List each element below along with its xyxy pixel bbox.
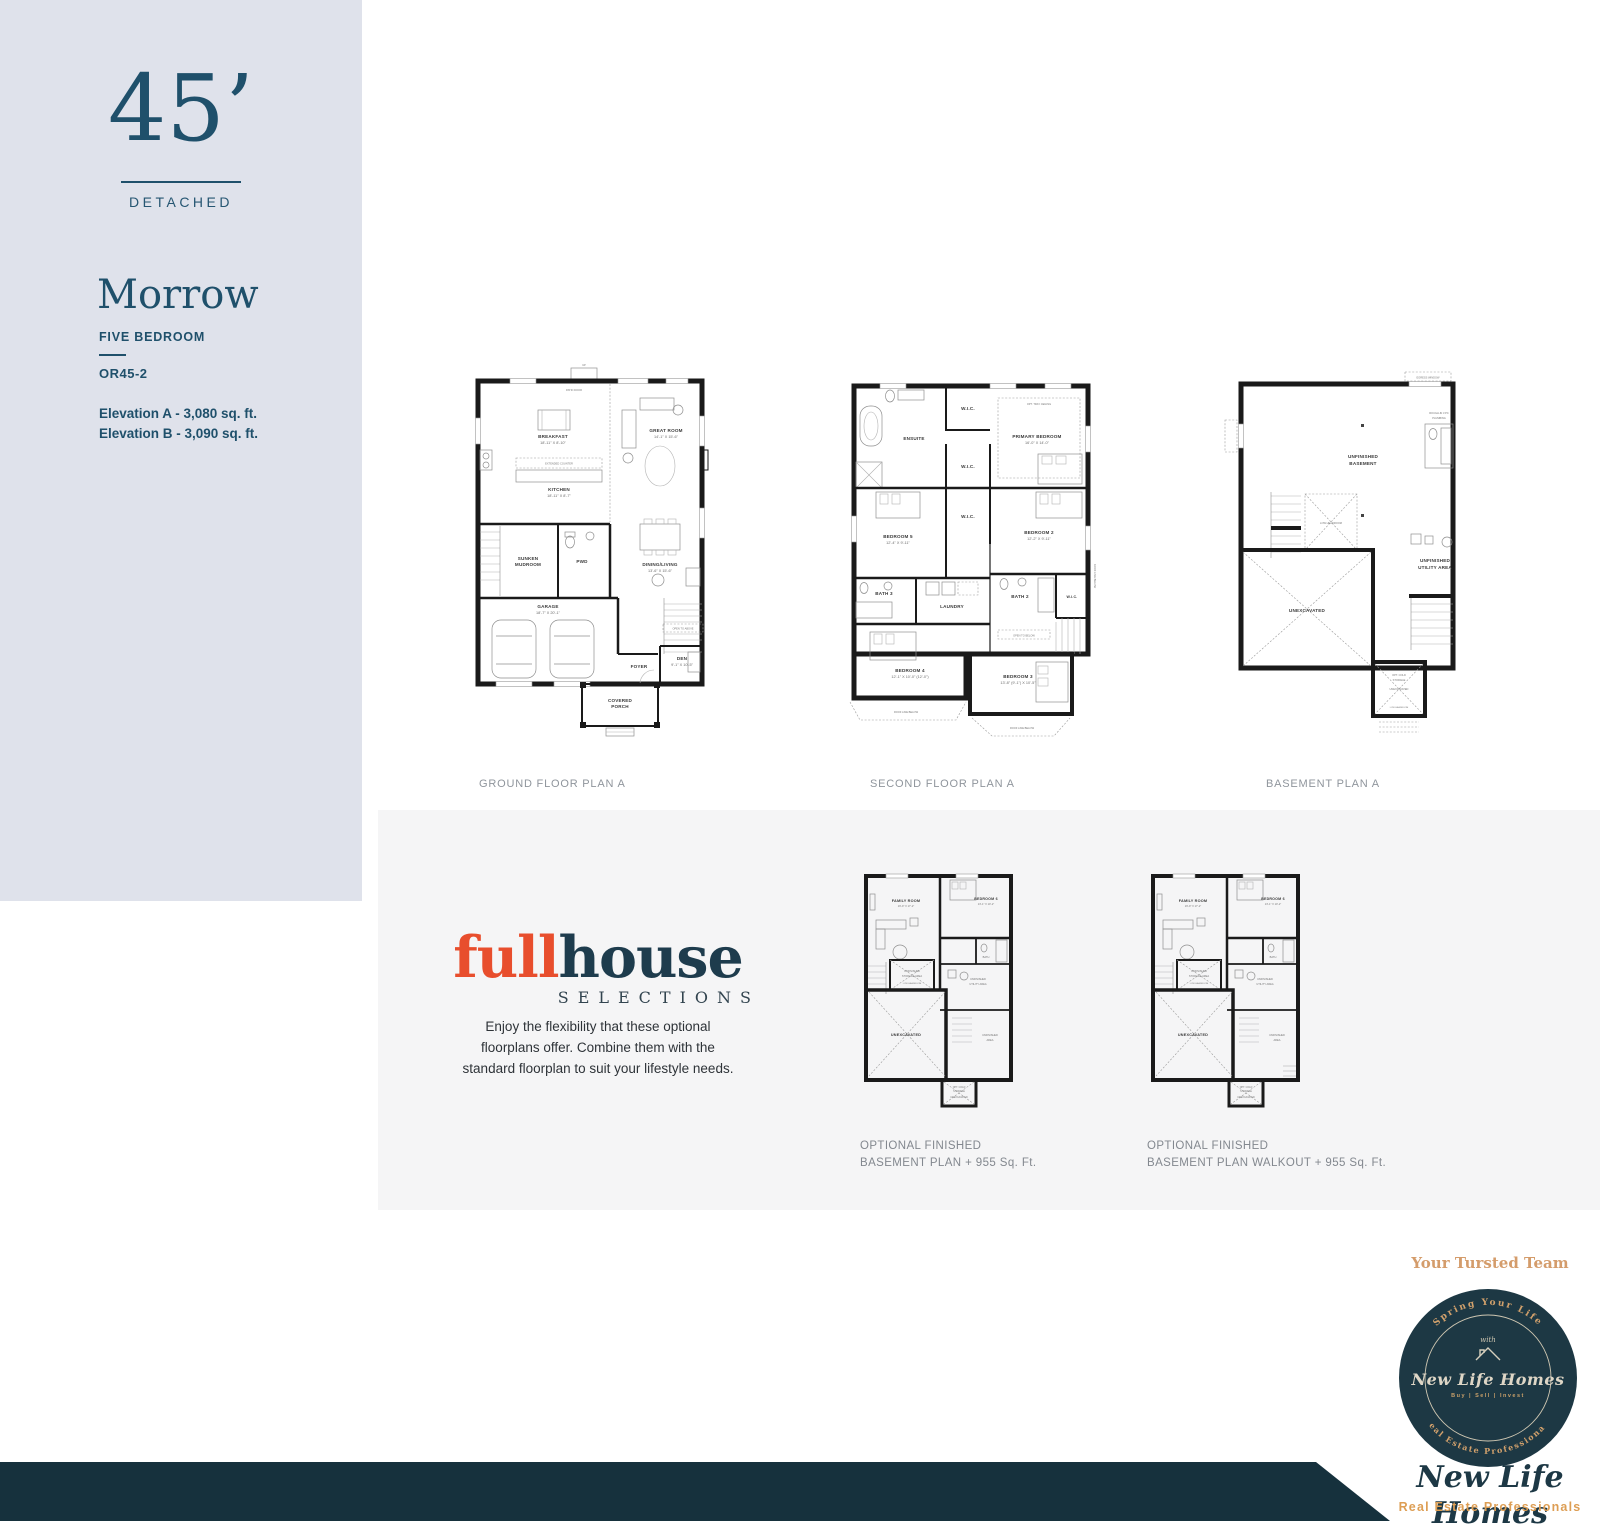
room-dim-primary: 16'-0" X 14'-0" <box>1025 441 1050 445</box>
dining-chairs <box>644 519 676 555</box>
badge-name: New Life Homes <box>1410 1370 1564 1389</box>
cold-unexcavated-label: UNEXCAVATED <box>1390 687 1409 691</box>
room-dim-bedroom6: 13'-1" X 10'-2" <box>978 902 994 906</box>
caption-second-floor: SECOND FLOOR PLAN A <box>870 778 1015 790</box>
area-label-1: UNFINISHED <box>1269 1033 1285 1037</box>
utility-label-1: UNFINISHED <box>1257 977 1273 981</box>
caption-optional-basement-line2: BASEMENT PLAN + 955 Sq. Ft. <box>860 1155 1036 1172</box>
caption-ground-floor: GROUND FLOOR PLAN A <box>479 778 626 790</box>
second-floor-plan: ENSUITE W.I.C. W.I.C. OPT. TRAY CEILING … <box>840 366 1100 744</box>
optional-plan-walls <box>866 874 1011 1106</box>
room-label-breakfast: BREAKFAST <box>538 434 568 439</box>
new-life-homes-badge: Spring Your Life with New Life Homes Buy… <box>1396 1286 1580 1470</box>
room-label-primary: PRIMARY BEDROOM <box>1012 434 1061 439</box>
lot-frontage: 45’ <box>0 58 362 159</box>
room-dim-bedroom5: 12'-4" X 9'-11" <box>886 541 910 545</box>
signature-wordmark: New Life Homes <box>1398 1460 1582 1532</box>
room-label-bath2: BATH 2 <box>1011 594 1029 599</box>
cold-unexcavated: UNEXCAVATED <box>950 1096 968 1099</box>
model-code: OR45-2 <box>99 366 148 381</box>
storage-label-2: STORAGE AREA <box>902 974 923 978</box>
caption-optional-basement: OPTIONAL FINISHED BASEMENT PLAN + 955 Sq… <box>860 1138 1036 1172</box>
trusted-team-tagline: Your Tursted Team <box>1400 1254 1580 1272</box>
car-2 <box>550 620 594 678</box>
room-dim-bedroom2: 12'-2" X 9'-11" <box>1027 537 1051 541</box>
utility-label-2: UTILITY AREA <box>1418 565 1452 570</box>
unexcavated-label: UNEXCAVATED <box>1178 1033 1208 1037</box>
cold-low-headroom-label: LOW HEADROOM <box>1390 706 1409 709</box>
room-label-bath: BATH <box>983 955 990 959</box>
second-plan-labels: ENSUITE W.I.C. W.I.C. OPT. TRAY CEILING … <box>875 402 1097 730</box>
elevation-b-sqft: Elevation B - 3,090 sq. ft. <box>99 426 258 441</box>
cold-label-1: OPT. COLD <box>1240 1086 1253 1089</box>
room-label-pwd: PWD <box>576 559 588 564</box>
optional-stairs-right <box>952 1018 972 1042</box>
egress-window-label: EGRESS WINDOW <box>1417 376 1440 380</box>
extended-counter-label: EXTENDED COUNTER <box>545 462 573 466</box>
unexcavated-label: UNEXCAVATED <box>1289 608 1326 613</box>
room-dim-family: 16'-9" X 17'-2" <box>1185 904 1201 908</box>
basement-stairs-lower <box>1411 598 1453 650</box>
storage-label-2: STORAGE AREA <box>1189 974 1210 978</box>
room-label-bedroom5: BEDROOM 5 <box>883 534 913 539</box>
cold-storage-label-1: OPT. COLD <box>1392 673 1406 677</box>
stairwell <box>1056 618 1080 654</box>
room-label-garage: GARAGE <box>537 604 558 609</box>
room-dim-den: 9'-1" X 10'-5" <box>671 663 694 667</box>
cold-storage-steps <box>1379 722 1419 732</box>
caption-basement: BASEMENT PLAN A <box>1266 778 1380 790</box>
optional-basement-plan: FAMILY ROOM 16'-9" X 17'-2" BEDROOM 6 13… <box>856 860 1021 1110</box>
room-dim-garage: 18'-7" X 20'-1" <box>536 611 561 615</box>
room-label-ensuite: ENSUITE <box>903 436 924 441</box>
room-label-foyer: FOYER <box>631 664 648 669</box>
room-label-bath3: BATH 3 <box>875 591 893 596</box>
open-to-above-label: OPEN TO ABOVE <box>672 627 693 631</box>
room-dim-dining: 13'-6" X 15'-6" <box>648 569 673 573</box>
room-label-mudroom: MUDROOM <box>515 562 541 567</box>
storage-label-1: UNFINISHED <box>1191 969 1207 973</box>
room-dim-bedroom4: 12'-1" X 10'-0" (12'-0") <box>891 675 929 679</box>
room-dim-breakfast: 18'-11" X 8'-10" <box>540 441 566 445</box>
badge-services: Buy | Sell | Invest <box>1451 1393 1525 1399</box>
cold-label-1: OPT. COLD <box>953 1086 966 1089</box>
optional-basement-walkout-plan: FAMILY ROOM 16'-9" X 17'-2" BEDROOM 6 13… <box>1143 860 1308 1110</box>
room-label-bath: BATH <box>1270 955 1277 959</box>
ground-floor-plan: UP PATIO DOOR EXTENDED COUNTER <box>458 358 730 754</box>
room-label-basement: BASEMENT <box>1349 461 1376 466</box>
opt-tray-ceiling-label: OPT. TRAY CEILING <box>1027 402 1051 406</box>
area-label-2: AREA <box>1273 1038 1280 1042</box>
badge-with-word: with <box>1480 1336 1496 1344</box>
divider-line <box>121 181 241 183</box>
storage-low-headroom: LOW HEADROOM <box>1190 982 1209 985</box>
cold-label-2: STORAGE <box>953 1090 965 1093</box>
room-label-bedroom2: BEDROOM 2 <box>1024 530 1054 535</box>
room-label-den: DEN <box>677 656 688 661</box>
room-label-bedroom6: BEDROOM 6 <box>1261 897 1285 901</box>
room-label-family: FAMILY ROOM <box>1179 899 1208 903</box>
storage-low-headroom: LOW HEADROOM <box>903 982 922 985</box>
cold-unexcavated: UNEXCAVATED <box>1237 1096 1255 1099</box>
room-label-wic2: W.I.C. <box>961 464 975 469</box>
room-label-kitchen: KITCHEN <box>548 487 570 492</box>
caption-optional-basement-line1: OPTIONAL FINISHED <box>860 1138 1036 1155</box>
fullhouse-description: Enjoy the flexibility that these optiona… <box>418 1016 778 1079</box>
basement-plan-walls <box>1225 372 1453 732</box>
room-label-sunken: SUNKEN <box>518 556 539 561</box>
room-dim-bedroom3: 13'-8" (9'-1") X 10'-5" <box>1000 681 1036 685</box>
patio-door-label: PATIO DOOR <box>566 388 582 392</box>
fullhouse-word-full: full <box>453 924 558 991</box>
room-dim-bedroom6: 13'-1" X 10'-2" <box>1265 902 1281 906</box>
caption-optional-walkout: OPTIONAL FINISHED BASEMENT PLAN WALKOUT … <box>1147 1138 1386 1172</box>
roof-line-label-left: ROOF LINE BELOW <box>894 710 919 714</box>
signature-subtitle: Real Estate Professionals <box>1398 1500 1582 1514</box>
room-label-great-room: GREAT ROOM <box>649 428 682 433</box>
area-label-2: AREA <box>986 1038 993 1042</box>
walkout-steps <box>1283 1066 1296 1076</box>
description-line-3: standard floorplan to suit your lifestyl… <box>418 1058 778 1079</box>
basement-plan-labels: EGRESS WINDOW UNFINISHED BASEMENT LOW HE… <box>1289 376 1452 710</box>
utility-label-2: UTILITY AREA <box>969 982 987 986</box>
utility-label-2: UTILITY AREA <box>1256 982 1274 986</box>
utility-label-1: UNFINISHED <box>970 977 986 981</box>
home-type-label: DETACHED <box>0 194 362 210</box>
basement-plan: EGRESS WINDOW UNFINISHED BASEMENT LOW HE… <box>1213 366 1478 738</box>
utility-label-1: UNFINISHED <box>1420 558 1451 563</box>
rough-in-label-1: ROUGH-IN 3 PC <box>1429 411 1449 415</box>
elevation-a-sqft: Elevation A - 3,080 sq. ft. <box>99 406 257 421</box>
fullhouse-wordmark: fullhouse <box>418 928 778 988</box>
model-info-sidebar: 45’ DETACHED Morrow FIVE BEDROOM OR45-2 … <box>0 0 362 901</box>
room-label-dining: DINING/LIVING <box>642 562 677 567</box>
bedroom-count-label: FIVE BEDROOM <box>99 330 205 344</box>
room-label-bedroom6: BEDROOM 6 <box>974 897 998 901</box>
fullhouse-logo: fullhouse SELECTIONS <box>418 928 778 1007</box>
room-label-covered: COVERED <box>608 698 633 703</box>
rough-in-label-2: PLUMBING <box>1432 416 1446 420</box>
open-to-below-label: OPEN TO BELOW <box>1013 634 1035 638</box>
room-label-laundry: LAUNDRY <box>940 604 964 609</box>
unexcavated-label: UNEXCAVATED <box>891 1033 921 1037</box>
room-label-wic3: W.I.C. <box>961 514 975 519</box>
optional-stairs-right <box>1239 1018 1259 1042</box>
roof-line-label-right: ROOF LINE BELOW <box>1093 564 1097 589</box>
roof-line-label-center: ROOF LINE BELOW <box>1010 726 1035 730</box>
mudroom-stairs <box>480 526 500 596</box>
ground-plan-walls: UP PATIO DOOR EXTENDED COUNTER <box>476 363 709 736</box>
divider-line-small <box>99 354 126 356</box>
caption-optional-walkout-line2: BASEMENT PLAN WALKOUT + 955 Sq. Ft. <box>1147 1155 1386 1172</box>
storage-label-1: UNFINISHED <box>904 969 920 973</box>
room-label-unfinished: UNFINISHED <box>1348 454 1379 459</box>
cold-label-2: STORAGE <box>1240 1090 1252 1093</box>
car-1 <box>492 620 536 678</box>
room-label-wic4: W.I.C. <box>1067 595 1078 599</box>
room-dim-great-room: 14'-1" X 15'-6" <box>654 435 679 439</box>
room-dim-kitchen: 18'-11" X 8'-7" <box>547 494 571 498</box>
room-label-bedroom4: BEDROOM 4 <box>895 668 925 673</box>
cold-storage-label-2: STORAGE <box>1393 678 1406 682</box>
optional-walkout-walls <box>1153 874 1298 1106</box>
room-label-wic1: W.I.C. <box>961 406 975 411</box>
footer-ribbon <box>0 1462 1390 1521</box>
low-headroom-label: LOW HEADROOM <box>1320 521 1342 525</box>
room-dim-family: 16'-9" X 17'-2" <box>898 904 914 908</box>
description-line-1: Enjoy the flexibility that these optiona… <box>418 1016 778 1037</box>
caption-optional-walkout-line1: OPTIONAL FINISHED <box>1147 1138 1386 1155</box>
fullhouse-word-house: house <box>559 924 743 991</box>
room-label-porch: PORCH <box>611 704 629 709</box>
room-label-bedroom3: BEDROOM 3 <box>1003 674 1033 679</box>
description-line-2: floorplans offer. Combine them with the <box>418 1037 778 1058</box>
stair-up-label: UP <box>582 363 586 367</box>
model-name: Morrow <box>97 272 259 318</box>
area-label-1: UNFINISHED <box>982 1033 998 1037</box>
room-label-family: FAMILY ROOM <box>892 899 921 903</box>
